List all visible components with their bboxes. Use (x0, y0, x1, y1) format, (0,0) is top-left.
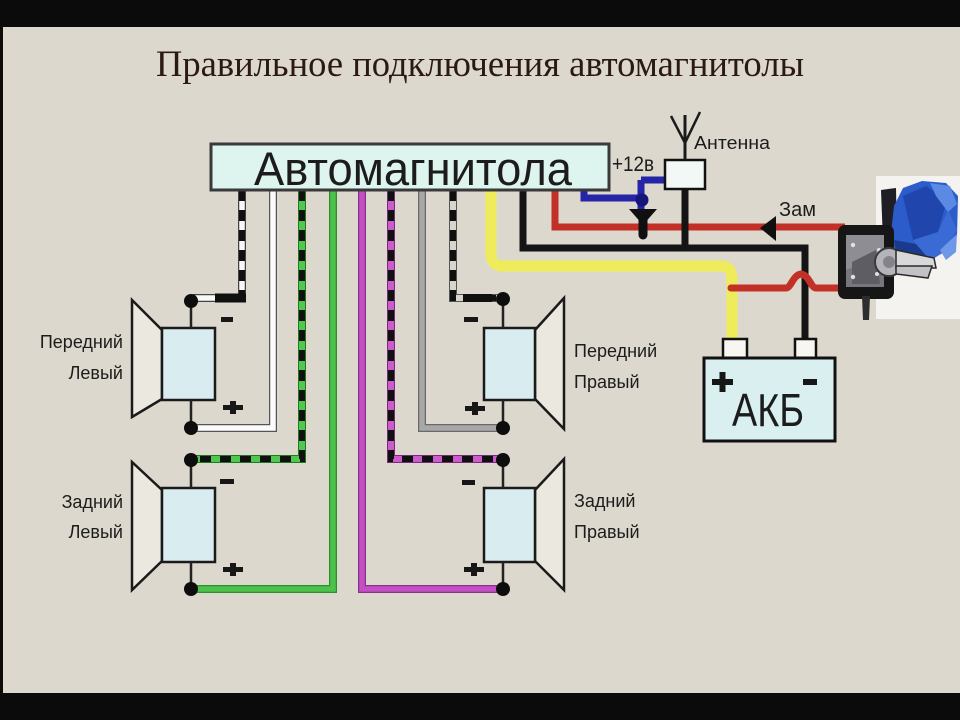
svg-text:Передний: Передний (40, 332, 123, 352)
svg-text:Зам: Зам (779, 199, 816, 221)
svg-text:Автомагнитола: Автомагнитола (254, 142, 573, 195)
svg-text:Левый: Левый (69, 363, 123, 383)
svg-text:Задний: Задний (62, 492, 123, 512)
svg-text:Правый: Правый (574, 522, 640, 542)
svg-text:Задний: Задний (574, 491, 635, 511)
svg-text:Антенна: Антенна (694, 133, 771, 153)
svg-text:Правый: Правый (574, 372, 640, 392)
svg-text:АКБ: АКБ (732, 384, 804, 436)
svg-text:Правильное подключения автомаг: Правильное подключения автомагнитолы (156, 44, 804, 85)
svg-text:Левый: Левый (69, 522, 123, 542)
svg-text:+12в: +12в (612, 153, 654, 176)
svg-text:Передний: Передний (574, 341, 657, 361)
